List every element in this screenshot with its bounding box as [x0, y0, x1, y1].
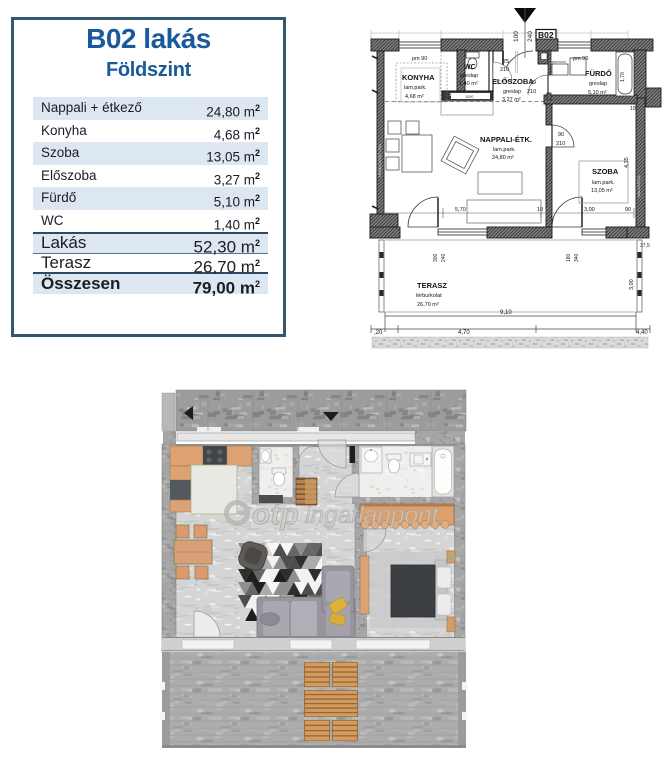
svg-text:,20: ,20: [374, 330, 383, 336]
svg-text:3,00: 3,00: [629, 279, 635, 290]
svg-text:B02: B02: [538, 30, 554, 40]
svg-text:75: 75: [503, 59, 509, 65]
svg-text:ingatlanpont: ingatlanpont: [305, 502, 440, 529]
svg-text:1,40 m²: 1,40 m²: [459, 81, 478, 87]
svg-text:37,5: 37,5: [640, 243, 650, 249]
svg-text:4,70: 4,70: [458, 330, 470, 336]
svg-text:26,70 m²: 26,70 m²: [417, 302, 439, 308]
svg-text:4,40: 4,40: [636, 330, 648, 336]
svg-text:90: 90: [558, 132, 564, 138]
svg-text:lam.park.: lam.park.: [404, 85, 427, 91]
svg-text:340: 340: [574, 253, 580, 262]
svg-text:greslap: greslap: [589, 81, 607, 87]
svg-text:4,35: 4,35: [624, 157, 630, 168]
svg-text:180: 180: [566, 253, 572, 262]
svg-text:lérburkolat: lérburkolat: [416, 293, 442, 299]
svg-text:240: 240: [441, 253, 447, 262]
svg-text:KONYHA: KONYHA: [402, 73, 435, 82]
svg-text:90: 90: [625, 207, 631, 213]
svg-text:FÜRDŐ: FÜRDŐ: [585, 69, 612, 78]
svg-text:3,00: 3,00: [584, 207, 595, 213]
svg-text:79: 79: [530, 80, 536, 86]
svg-text:TERASZ: TERASZ: [417, 281, 447, 290]
svg-text:1000: 1000: [465, 95, 473, 99]
svg-text:otp: otp: [252, 498, 299, 531]
svg-text:NAPPALI-ÉTK.: NAPPALI-ÉTK.: [480, 135, 532, 144]
svg-text:10: 10: [630, 106, 636, 112]
svg-text:lam.park.: lam.park.: [592, 180, 615, 186]
svg-text:100: 100: [513, 31, 520, 42]
svg-text:210: 210: [500, 67, 509, 73]
svg-text:ELŐSZOBA: ELŐSZOBA: [492, 77, 534, 86]
svg-text:gépmosó: gépmosó: [551, 60, 566, 64]
svg-text:greslap: greslap: [460, 73, 478, 79]
svg-text:300: 300: [433, 253, 439, 262]
svg-text:210: 210: [556, 141, 565, 147]
svg-text:5,10 m²: 5,10 m²: [588, 90, 607, 96]
svg-text:pm 90: pm 90: [412, 56, 427, 62]
svg-text:16: 16: [449, 92, 454, 97]
svg-text:10: 10: [537, 207, 543, 213]
svg-text:5,70: 5,70: [455, 207, 466, 213]
svg-text:lam.park.: lam.park.: [493, 147, 516, 153]
svg-text:greslap: greslap: [503, 89, 521, 95]
svg-text:9,10: 9,10: [500, 310, 512, 316]
svg-text:24,80 m²: 24,80 m²: [492, 155, 514, 161]
svg-text:210: 210: [527, 89, 536, 95]
svg-text:13,05 m²: 13,05 m²: [591, 188, 613, 194]
svg-text:3,27 m²: 3,27 m²: [502, 97, 521, 103]
svg-text:SZOBA: SZOBA: [592, 167, 619, 176]
svg-text:VALASZFAL: VALASZFAL: [636, 174, 641, 197]
svg-text:HOMLOKZATI FAL: HOMLOKZATI FAL: [377, 142, 382, 177]
svg-text:240: 240: [527, 31, 534, 42]
svg-text:1,70: 1,70: [620, 72, 626, 82]
svg-text:4,68 m²: 4,68 m²: [405, 94, 424, 100]
